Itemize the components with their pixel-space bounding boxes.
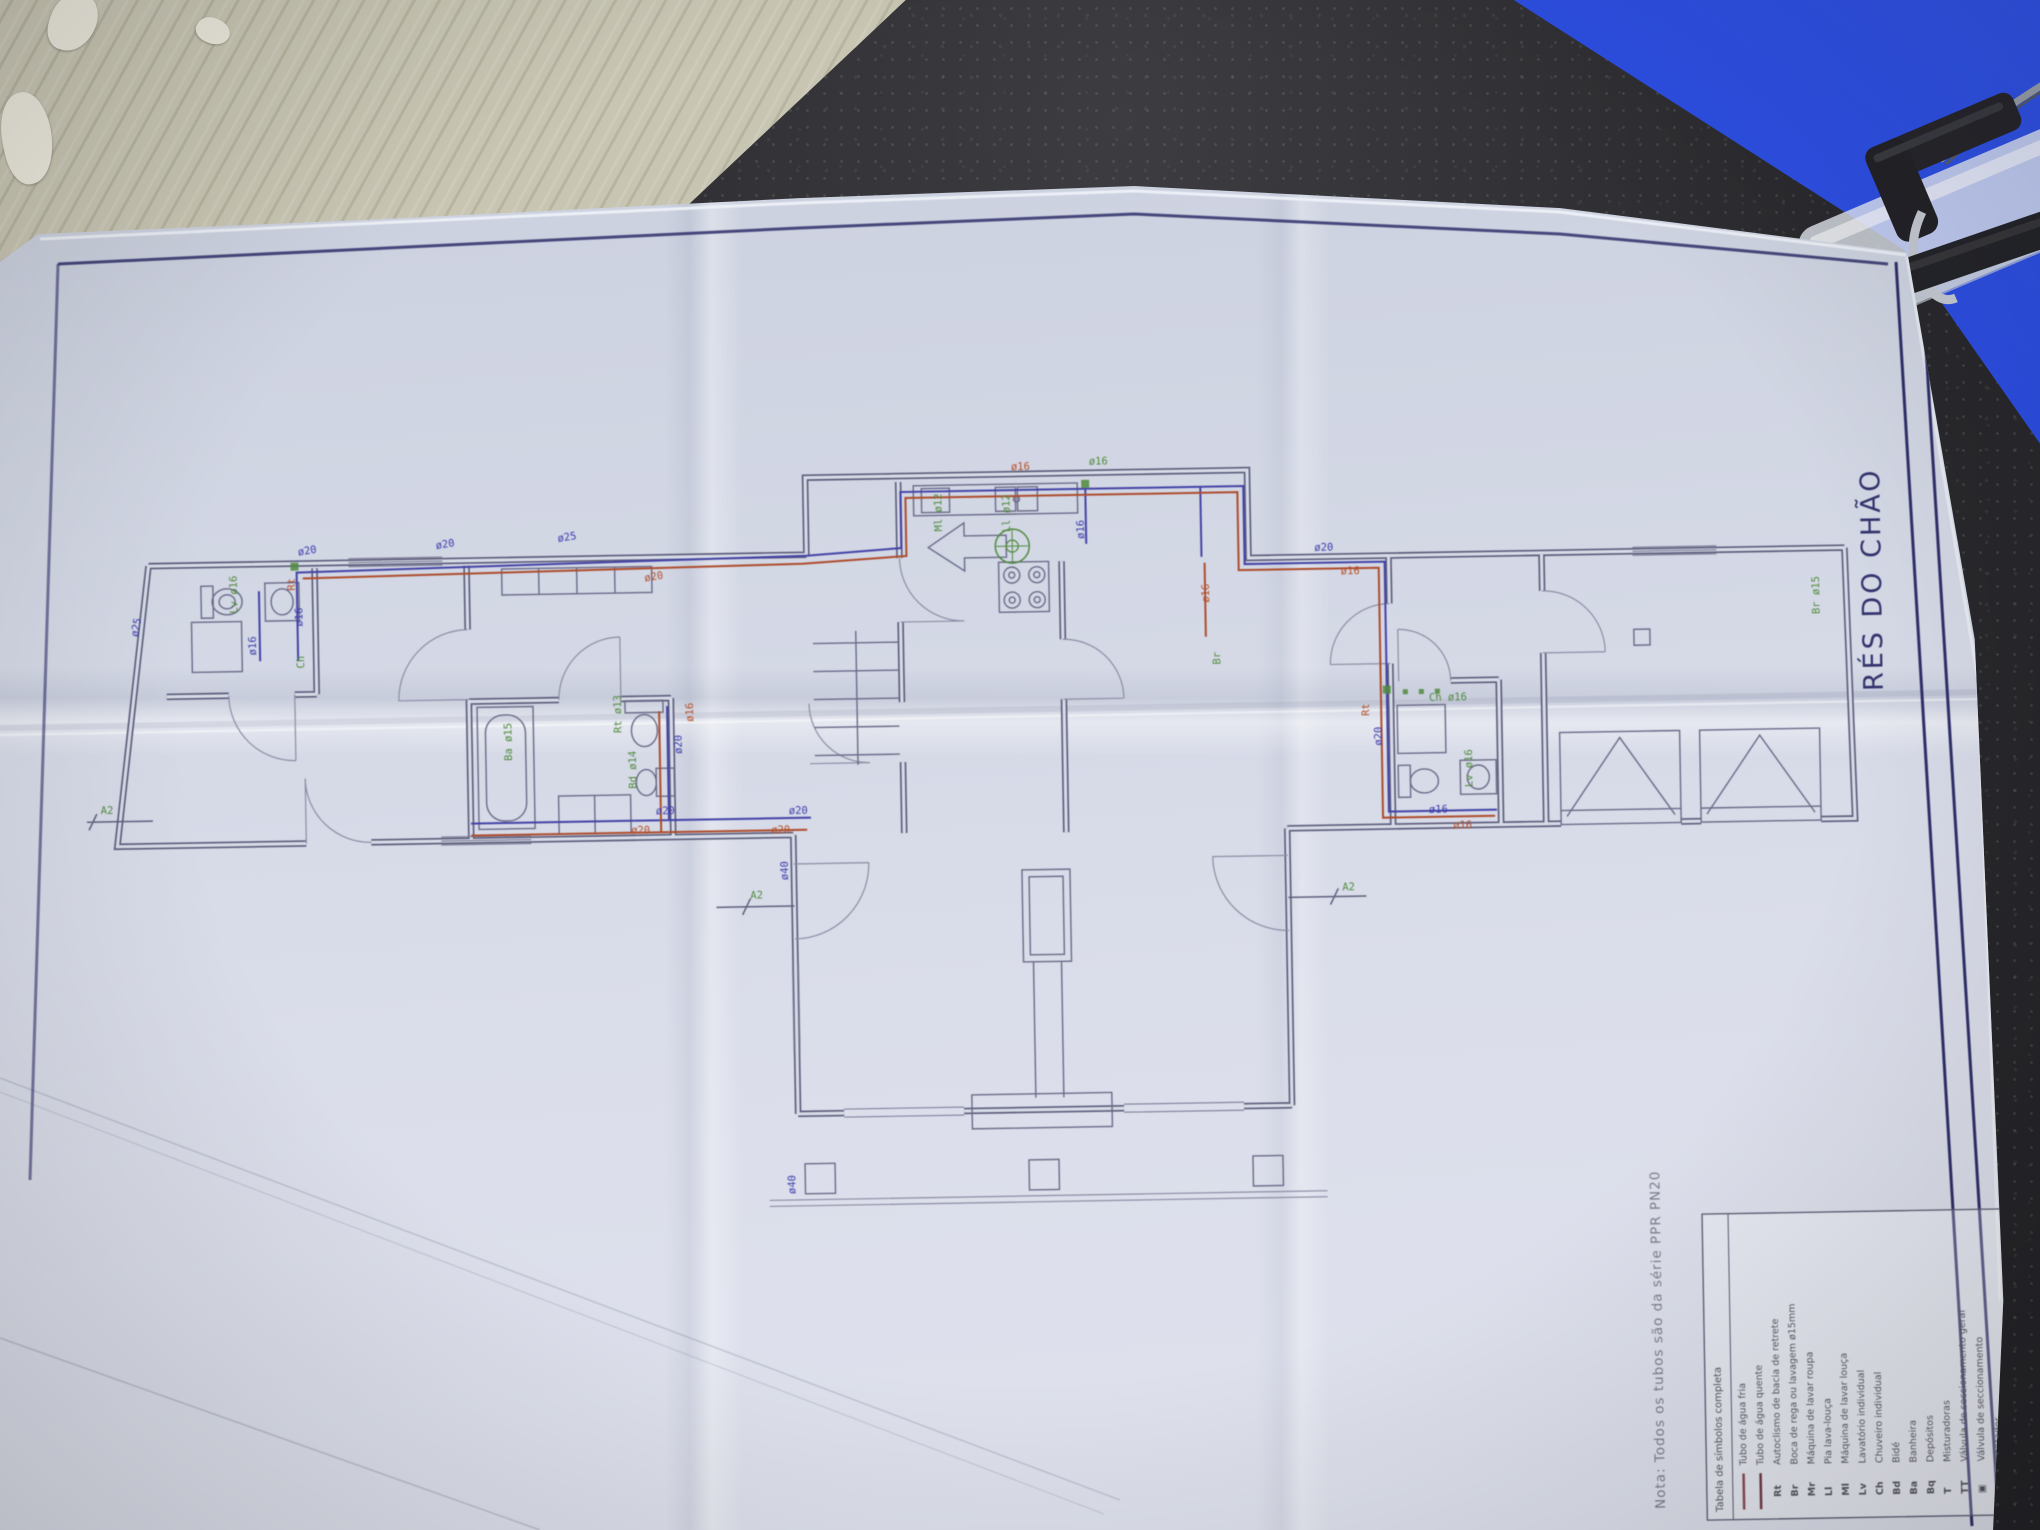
pipe-label: Rt (286, 578, 298, 591)
pipe-label: ø20 (789, 805, 808, 817)
legend-label: Bidé (1891, 1442, 1902, 1463)
legend-label: Lavatório individual (1856, 1370, 1869, 1464)
pipe-label: Ml ø12 (932, 493, 945, 531)
legend-line-symbol (1744, 1473, 1745, 1509)
pipe-label: ø40 (786, 1175, 798, 1194)
legend-symbol: Ch (1875, 1481, 1886, 1495)
legend-symbol: Bd (1892, 1481, 1903, 1495)
pipe-label: Lv ø16 (1463, 749, 1476, 787)
legend-header: Tabela de símbolos completa (1712, 1367, 1727, 1513)
legend-symbol: Ml (1841, 1483, 1852, 1496)
valve-marker (1081, 480, 1089, 488)
legend-block: Tabela de símbolos completa Tubo de água… (1702, 1208, 2040, 1520)
legend-label: Banheira (1908, 1420, 1920, 1463)
pipe-label: A2 (1342, 881, 1355, 893)
photo-scene: ø20ø20ø25ø20ø16ø16RtChLv ø16ø25A2ø20ø20ø… (0, 0, 2040, 1530)
toilet-tank (625, 700, 663, 713)
garage-doors (1558, 626, 1821, 825)
pipe-label: ø20 (673, 735, 685, 754)
legend-symbol: Lv (1858, 1482, 1869, 1495)
plan-title: RÉS DO CHÃO (1854, 467, 1890, 691)
cold-water-pipe (259, 591, 260, 661)
valve-marker (1383, 686, 1391, 694)
legend-label: Depósitos (1925, 1415, 1937, 1462)
legend-symbol: Rt (1773, 1484, 1784, 1497)
legend-box (1702, 1208, 2040, 1520)
pipe-label: A2 (101, 805, 114, 817)
legend-symbol: Br (1790, 1484, 1801, 1496)
pipe-label: ø16 (247, 636, 259, 655)
porch-columns (769, 1155, 1328, 1207)
cold-water-pipe (1085, 487, 1201, 559)
pipe-label: ø16 (293, 607, 305, 626)
legend-symbol: Mr (1807, 1482, 1818, 1497)
paper-edge-highlights (40, 191, 2000, 1300)
toilet-tank (1398, 765, 1411, 797)
pipes-group (257, 473, 1497, 839)
pipe-label: ø20 (297, 544, 318, 559)
pipe-label: ø16 (1011, 461, 1030, 473)
pipe-label: A2 (750, 890, 763, 902)
windows-group (348, 535, 1726, 1126)
legend-label: Chuveiro individual (1873, 1372, 1886, 1464)
shower-tray (1397, 705, 1446, 754)
legend-label: Pia lava-louça (1822, 1398, 1834, 1464)
pipe-label: Ch ø16 (1429, 691, 1467, 704)
legend-symbol: Ll (1824, 1487, 1835, 1497)
pipe-label: ø20 (435, 537, 456, 552)
pipe-label: ø20 (643, 570, 664, 585)
pipe-label: Ch (295, 656, 307, 669)
toilet-bowl (1410, 769, 1438, 793)
walls-group (111, 459, 1860, 1125)
legend-label: Máquina de lavar roupa (1804, 1352, 1817, 1465)
legend-symbol: ▣ (1977, 1484, 1988, 1493)
pipe-label: ø16 (1429, 804, 1448, 816)
pipe-label: ø16 (684, 703, 696, 722)
legend-label: Tubo de água fria (1737, 1383, 1749, 1467)
legend-line-symbol (1761, 1473, 1762, 1509)
legend-symbol: T (1943, 1487, 1954, 1494)
pipe-label: ø16 (1075, 520, 1087, 539)
legend-label: Válvula de seccionamento (1974, 1337, 1987, 1462)
pipe-label: Rt (1360, 703, 1372, 716)
pipe-label: ø40 (779, 861, 791, 880)
pipe-label: Br (1211, 652, 1223, 665)
fixtures-group (81, 470, 1827, 1218)
legend-label: Misturadoras (1941, 1400, 1953, 1462)
pipe-label: Lv ø16 (228, 576, 241, 614)
pipe-label: Ll ø12 (1000, 494, 1013, 532)
valve-marker (290, 563, 298, 571)
legend-symbol: Ba (1909, 1481, 1920, 1495)
pipe-label: ø20 (771, 824, 790, 836)
stairs (813, 630, 900, 765)
pipe-label: Br ø15 (1810, 576, 1823, 614)
pipe-label: ø25 (557, 530, 578, 545)
legend-symbol: Bq (1926, 1480, 1937, 1494)
shower-tray (191, 622, 242, 673)
legend-label: Máquina de lavar louça (1838, 1353, 1851, 1464)
legend-symbol: TT (1960, 1480, 1971, 1494)
doors-group (227, 546, 1610, 949)
pipe-label: ø16 (1341, 565, 1360, 577)
pipe-label: Ba ø15 (502, 723, 515, 761)
connection-markers (87, 792, 1367, 926)
pipe-label: ø16 (1089, 455, 1108, 467)
fireplace-chimney (968, 868, 1112, 1128)
legend-note: Nota: Todos os tubos são da série PPR PN… (1647, 1171, 1669, 1510)
pipe-label: ø16 (1453, 819, 1472, 831)
legend-label: Tubo de água quente (1754, 1365, 1767, 1467)
pipe-label: Bd ø14 (627, 751, 640, 789)
pipe-label: ø20 (656, 805, 675, 817)
pipe-label: ø16 (1200, 584, 1212, 603)
pipe-label: ø20 (1314, 542, 1333, 554)
pipe-label: ø20 (1372, 727, 1384, 746)
pipe-label: Rt ø13 (612, 695, 625, 733)
pipe-label: ø20 (631, 824, 650, 836)
